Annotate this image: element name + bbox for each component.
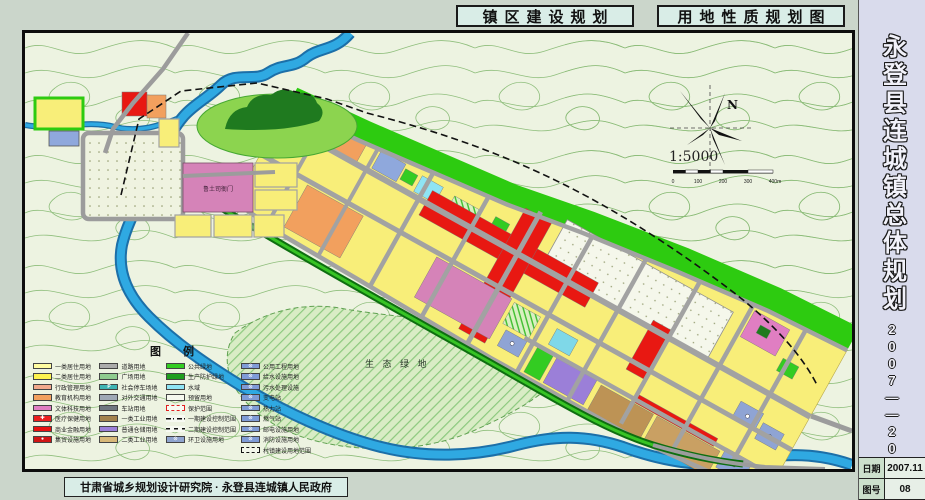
legend-entry: 一类工业用地: [99, 415, 160, 423]
svg-text:300: 300: [744, 179, 753, 185]
legend-entry: ⊙给水设施用地: [241, 373, 311, 381]
historic-site-label: 鲁土司衙门: [203, 185, 233, 193]
legend-swatch: [33, 394, 52, 401]
svg-text:0: 0: [672, 179, 675, 185]
legend-entry: 村镇建设用地范围: [241, 446, 311, 454]
legend-entry-label: 生产防护绿地: [188, 372, 224, 381]
legend-entry: ●集贸设施用地: [33, 436, 94, 444]
sheet-info-value: 2007.11: [885, 458, 925, 478]
legend-swatch: [166, 373, 185, 380]
legend-entry: 道路用地: [99, 362, 160, 370]
legend-entry: 商业金融用地: [33, 425, 94, 433]
scale-ratio: 1:5000: [669, 149, 718, 165]
legend-entry-label: 普通仓储用地: [121, 425, 157, 434]
header-right-title: 用地性质规划图: [657, 5, 845, 27]
legend-entry: 对外交通用地: [99, 394, 160, 402]
legend-entry: ✚医疗保健用地: [33, 415, 94, 423]
legend-swatch: ⊙: [241, 373, 260, 380]
svg-text:200: 200: [719, 179, 728, 185]
legend-swatch: [33, 363, 52, 370]
legend-swatch-symbol: ⊙: [248, 437, 252, 442]
plan-map: 鲁土司衙门 生 态 绿 地 N 1:5000 0 100 20: [22, 30, 855, 472]
legend-entry: ⊙消防设施用地: [241, 436, 311, 444]
legend-swatch: [99, 373, 118, 380]
legend-entry-label: 给水设施用地: [263, 372, 299, 381]
legend-entry-label: 环卫设施用地: [188, 435, 224, 444]
legend-entry: 行政管理用地: [33, 383, 94, 391]
legend-entry-label: 一类居住用地: [55, 362, 91, 371]
legend-swatch-symbol: ⊙: [248, 416, 252, 421]
legend-entry-label: 一类工业用地: [121, 414, 157, 423]
header-left-title: 镇区建设规划: [456, 5, 634, 27]
legend-entry: ⊙环卫设施用地: [166, 436, 236, 444]
legend-entry-label: 教育机构用地: [55, 393, 91, 402]
legend-entry-label: 燃气站: [263, 414, 281, 423]
legend-swatch: ⊙: [241, 436, 260, 443]
legend-entry-label: 对外交通用地: [121, 393, 157, 402]
legend-swatch: [241, 447, 260, 454]
legend-entry-label: 邮电设施用地: [263, 425, 299, 434]
legend-entry-label: 保护范围: [188, 404, 212, 413]
legend-swatch: ⊙: [241, 384, 260, 391]
sheet-info-table: 日期2007.11图号08: [859, 457, 925, 500]
legend: 图 例 一类居住用地二类居住用地行政管理用地教育机构用地文体科技用地✚医疗保健用…: [33, 343, 311, 454]
legend-swatch-symbol: ⊙: [248, 427, 252, 432]
legend-swatch-symbol: ⊙: [248, 364, 252, 369]
legend-entry-label: 集贸设施用地: [55, 435, 91, 444]
north-label: N: [727, 98, 738, 112]
legend-swatch: ⊙: [241, 405, 260, 412]
legend-swatch-symbol: ●: [41, 437, 44, 442]
legend-column: 公共绿地生产防护绿地水域预留用地保护范围一期建设控制范围二期建设控制范围⊙环卫设…: [166, 362, 236, 454]
legend-swatch-symbol: ⊙: [248, 395, 252, 400]
svg-text:400m: 400m: [769, 179, 782, 185]
legend-swatch: ⊙: [241, 415, 260, 422]
legend-swatch: [99, 426, 118, 433]
legend-entry-label: 医疗保健用地: [55, 414, 91, 423]
legend-entry: 公共绿地: [166, 362, 236, 370]
legend-entry: ⊙燃气站: [241, 415, 311, 423]
legend-entry: 文体科技用地: [33, 404, 94, 412]
legend-swatch: [166, 384, 185, 391]
legend-entry: ⊙公用工程用地: [241, 362, 311, 370]
legend-entry-label: 商业金融用地: [55, 425, 91, 434]
legend-entry-label: 车站用地: [121, 404, 145, 413]
legend-swatch: ⊙: [241, 394, 260, 401]
legend-entry-label: 热力站: [263, 404, 281, 413]
legend-entry-label: 公用工程用地: [263, 362, 299, 371]
legend-swatch-symbol: ✚: [40, 416, 44, 421]
plan-sheet-page: { "header": { "left_title": "镇区建设规划", "r…: [0, 0, 925, 500]
legend-entry-label: 二类居住用地: [55, 372, 91, 381]
legend-swatch: [33, 384, 52, 391]
legend-entry: 广场用地: [99, 373, 160, 381]
legend-swatch: ⊙: [241, 426, 260, 433]
legend-swatch: ✚: [33, 415, 52, 422]
legend-swatch: [166, 426, 185, 433]
legend-column: 一类居住用地二类居住用地行政管理用地教育机构用地文体科技用地✚医疗保健用地商业金…: [33, 362, 94, 454]
sheet-info-label: 日期: [859, 458, 885, 478]
legend-entry: 一期建设控制范围: [166, 415, 236, 423]
legend-entry: 生产防护绿地: [166, 373, 236, 381]
legend-swatch-symbol: ⊙: [248, 374, 252, 379]
legend-entry-label: 文体科技用地: [55, 404, 91, 413]
legend-entry: 二类居住用地: [33, 373, 94, 381]
west-parcel-yellow: [35, 98, 83, 129]
legend-entry-label: 社会停车场地: [121, 383, 157, 392]
legend-entry: 水域: [166, 383, 236, 391]
legend-swatch: [166, 363, 185, 370]
legend-entry: P社会停车场地: [99, 383, 160, 391]
legend-entry-label: 水域: [188, 383, 200, 392]
legend-swatch: [99, 363, 118, 370]
legend-entry-label: 二类工业用地: [121, 435, 157, 444]
legend-entry: 保护范围: [166, 404, 236, 412]
legend-entry: 车站用地: [99, 404, 160, 412]
legend-entry-label: 广场用地: [121, 372, 145, 381]
sheet-info-label: 图号: [859, 479, 885, 499]
legend-swatch-symbol: ⊙: [173, 437, 177, 442]
legend-swatch: [166, 415, 185, 422]
legend-entry-label: 一期建设控制范围: [188, 414, 236, 423]
legend-entry: ⊙变电站: [241, 394, 311, 402]
legend-column: ⊙公用工程用地⊙给水设施用地⊙污水处理设施⊙变电站⊙热力站⊙燃气站⊙邮电设施用地…: [241, 362, 311, 454]
legend-swatch: [166, 405, 185, 412]
legend-swatch: [166, 394, 185, 401]
legend-swatch-symbol: P: [107, 385, 110, 390]
west-parcel-blue: [49, 131, 79, 146]
title-sidebar: 永登县连城镇总体规划 2007——2020 日期2007.11图号08: [858, 0, 925, 500]
legend-entry-label: 变电站: [263, 393, 281, 402]
legend-entry: ⊙邮电设施用地: [241, 425, 311, 433]
sheet-info-value: 08: [885, 479, 925, 499]
legend-entry: 教育机构用地: [33, 394, 94, 402]
legend-swatch: ●: [33, 436, 52, 443]
legend-entry: 预留用地: [166, 394, 236, 402]
legend-column: 道路用地广场用地P社会停车场地对外交通用地车站用地一类工业用地普通仓储用地二类工…: [99, 362, 160, 454]
svg-text:100: 100: [694, 179, 703, 185]
sheet-title-vertical: 永登县连城镇总体规划: [875, 34, 910, 314]
legend-entry-label: 行政管理用地: [55, 383, 91, 392]
legend-entry-label: 村镇建设用地范围: [263, 446, 311, 455]
legend-title: 图 例: [33, 343, 311, 359]
legend-entry: 一类居住用地: [33, 362, 94, 370]
legend-swatch: [99, 394, 118, 401]
legend-entry-label: 道路用地: [121, 362, 145, 371]
legend-swatch: [33, 405, 52, 412]
legend-swatch: P: [99, 384, 118, 391]
legend-swatch: [99, 405, 118, 412]
eco-green-label: 生 态 绿 地: [365, 358, 430, 369]
legend-entry-label: 污水处理设施: [263, 383, 299, 392]
legend-entry-label: 二期建设控制范围: [188, 425, 236, 434]
legend-entry: 二类工业用地: [99, 436, 160, 444]
legend-swatch-symbol: ⊙: [248, 406, 252, 411]
legend-swatch: [99, 436, 118, 443]
legend-entry-label: 预留用地: [188, 393, 212, 402]
legend-swatch: ⊙: [241, 363, 260, 370]
legend-swatch: [33, 426, 52, 433]
legend-swatch: ⊙: [166, 436, 185, 443]
legend-entry-label: 消防设施用地: [263, 435, 299, 444]
credit-box: 甘肃省城乡规划设计研究院 · 永登县连城镇人民政府: [64, 477, 348, 497]
legend-entry: 二期建设控制范围: [166, 425, 236, 433]
legend-swatch: [99, 415, 118, 422]
legend-swatch: [33, 373, 52, 380]
legend-entry-label: 公共绿地: [188, 362, 212, 371]
legend-entry: 普通仓储用地: [99, 425, 160, 433]
legend-entry: ⊙热力站: [241, 404, 311, 412]
sheet-info-row: 图号08: [859, 479, 925, 500]
legend-entry: ⊙污水处理设施: [241, 383, 311, 391]
sheet-info-row: 日期2007.11: [859, 458, 925, 479]
legend-swatch-symbol: ⊙: [248, 385, 252, 390]
